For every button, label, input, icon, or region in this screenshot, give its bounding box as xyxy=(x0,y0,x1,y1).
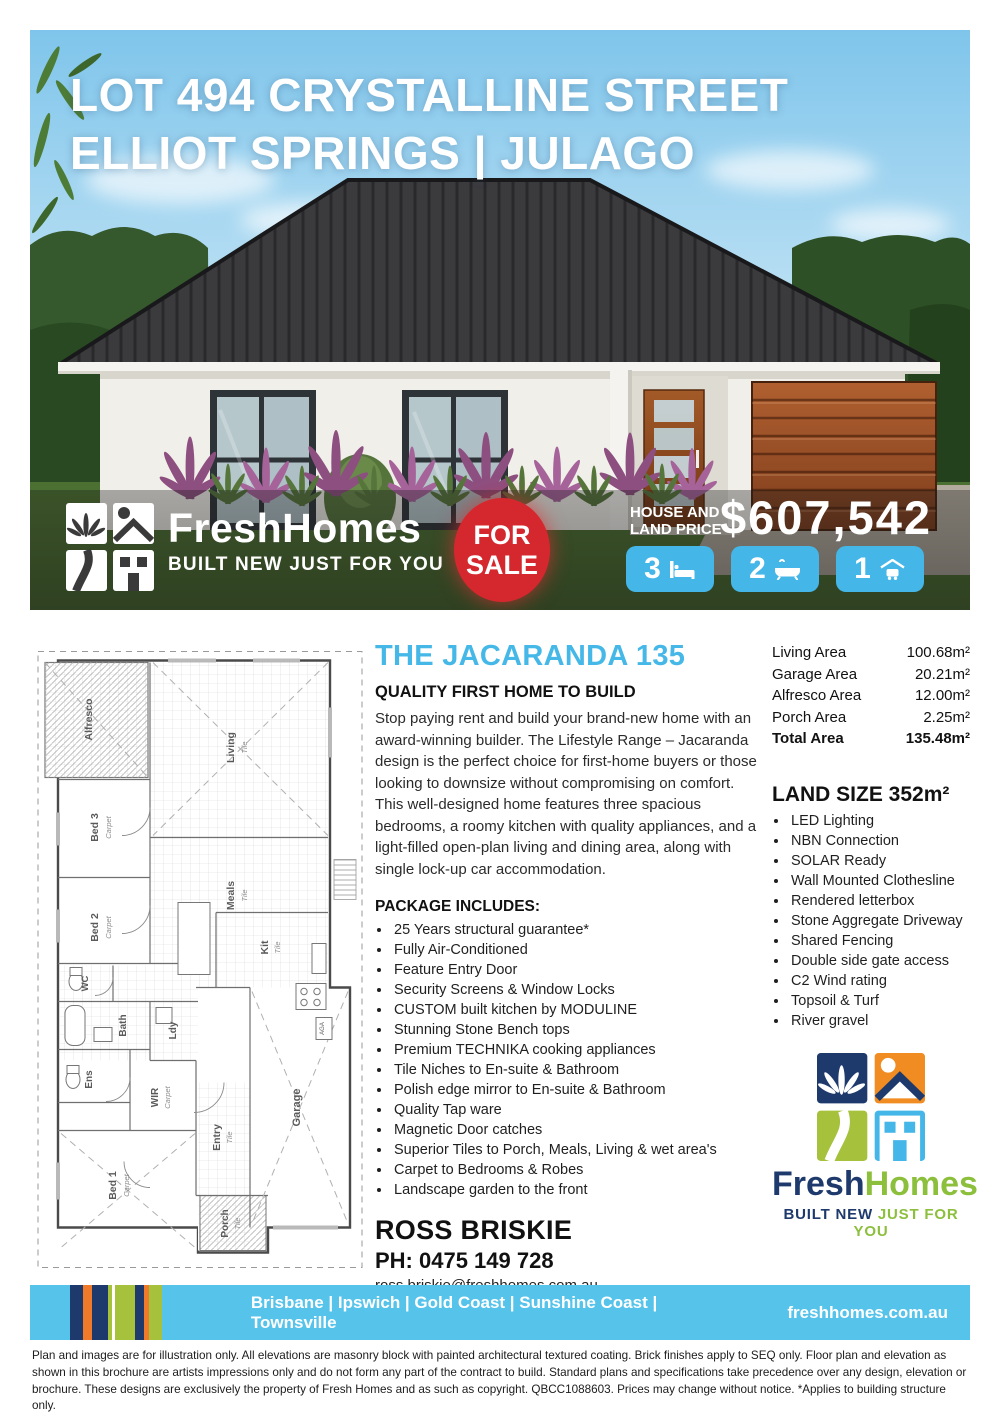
feature-item: C2 Wind rating xyxy=(789,971,970,991)
hero-info-strip: FreshHomes BUILT NEW JUST FOR YOU FOR SA… xyxy=(30,490,970,610)
package-item: Feature Entry Door xyxy=(392,960,760,980)
brand-name-color: FreshHomes xyxy=(772,1166,970,1202)
footer-stripe xyxy=(70,1285,83,1340)
features-list: LED LightingNBN ConnectionSOLAR ReadyWal… xyxy=(789,811,970,1031)
brand-lockup-white: FreshHomes BUILT NEW JUST FOR YOU xyxy=(168,506,444,576)
freshhomes-logo-mark xyxy=(817,1053,925,1161)
description-column: THE JACARANDA 135 QUALITY FIRST HOME TO … xyxy=(375,640,760,1294)
feature-item: NBN Connection xyxy=(789,831,970,851)
package-item: Carpet to Bedrooms & Robes xyxy=(392,1160,760,1180)
property-stats: 3 2 xyxy=(626,546,924,592)
svg-text:Carpet: Carpet xyxy=(163,1085,172,1108)
area-row: Porch Area 2.25m² xyxy=(772,707,970,729)
svg-text:Porch: Porch xyxy=(220,1209,231,1237)
brand-homes-green: Homes xyxy=(865,1165,978,1203)
fine-print: Plan and images are for illustration onl… xyxy=(32,1348,970,1415)
svg-text:Living: Living xyxy=(225,732,237,763)
svg-text:Garage: Garage xyxy=(291,1089,303,1127)
area-table: Living Area 100.68m² Garage Area 20.21m²… xyxy=(772,642,970,728)
total-area-label: Total Area xyxy=(772,728,844,750)
svg-text:WC: WC xyxy=(80,975,91,991)
package-item: Stunning Stone Bench tops xyxy=(392,1020,760,1040)
svg-text:Meals: Meals xyxy=(225,881,237,910)
area-value: 2.25m² xyxy=(923,707,970,729)
contact-block: ROSS BRISKIE PH: 0475 149 728 ross.brisk… xyxy=(375,1215,760,1294)
tagline-navy: BUILT NEW xyxy=(784,1206,878,1223)
bed-icon xyxy=(669,559,696,580)
price-label-line2: LAND PRICE xyxy=(630,521,722,538)
area-label: Living Area xyxy=(772,642,846,664)
description-paragraph: Stop paying rent and build your brand-ne… xyxy=(375,708,760,880)
brand-tagline-color: BUILT NEW JUST FOR YOU xyxy=(772,1206,970,1240)
svg-text:Bed 2: Bed 2 xyxy=(89,913,101,942)
for-sale-line1: FOR xyxy=(474,520,531,550)
area-value: 12.00m² xyxy=(915,685,970,707)
svg-text:Alfresco: Alfresco xyxy=(83,698,95,740)
svg-text:Carpet: Carpet xyxy=(122,1173,131,1196)
area-value: 100.68m² xyxy=(907,642,970,664)
area-row-total: Total Area 135.48m² xyxy=(772,728,970,750)
svg-text:Carpet: Carpet xyxy=(104,815,113,838)
package-item: Quality Tap ware xyxy=(392,1100,760,1120)
svg-text:Ens: Ens xyxy=(84,1070,95,1089)
agent-name: ROSS BRISKIE xyxy=(375,1215,760,1246)
footer-stripe xyxy=(149,1285,162,1340)
feature-item: Topsoil & Turf xyxy=(789,991,970,1011)
svg-text:Tile: Tile xyxy=(240,889,249,901)
freshhomes-logo-white xyxy=(66,503,154,591)
bedrooms-badge: 3 xyxy=(626,546,714,592)
brand-homes: Homes xyxy=(282,505,421,551)
area-row: Garage Area 20.21m² xyxy=(772,664,970,686)
brand-fresh-navy: Fresh xyxy=(772,1165,865,1203)
svg-text:Bath: Bath xyxy=(118,1014,129,1036)
feature-item: River gravel xyxy=(789,1011,970,1031)
brand-name: FreshHomes xyxy=(168,506,444,550)
footer-stripe xyxy=(92,1285,108,1340)
feature-item: LED Lighting xyxy=(789,811,970,831)
package-item: Magnetic Door catches xyxy=(392,1120,760,1140)
price-value: $607,542 xyxy=(720,490,932,545)
brand-tagline: BUILT NEW JUST FOR YOU xyxy=(168,554,444,576)
svg-text:Tile: Tile xyxy=(273,941,282,953)
package-item: Tile Niches to En-suite & Bathroom xyxy=(392,1060,760,1080)
price-label: HOUSE AND LAND PRICE xyxy=(630,504,722,538)
feature-item: Stone Aggregate Driveway xyxy=(789,911,970,931)
agent-phone: PH: 0475 149 728 xyxy=(375,1248,760,1274)
garage-badge: 1 xyxy=(836,546,924,592)
package-item: Security Screens & Window Locks xyxy=(392,980,760,1000)
svg-text:Tile: Tile xyxy=(233,1217,242,1229)
package-item: CUSTOM built kitchen by MODULINE xyxy=(392,1000,760,1020)
bathrooms-count: 2 xyxy=(749,552,766,586)
listing-title-line1: LOT 494 CRYSTALLINE STREET xyxy=(70,66,788,124)
feature-item: Wall Mounted Clothesline xyxy=(789,871,970,891)
svg-text:Tile: Tile xyxy=(225,1131,234,1143)
svg-text:AGA: AGA xyxy=(320,1022,326,1035)
package-item: Fully Air-Conditioned xyxy=(392,940,760,960)
listing-title-line2: ELLIOT SPRINGS | JULAGO xyxy=(70,124,788,182)
floorplan-drawing: Alfresco Living Tile Bed 3 Carpet Meals … xyxy=(28,645,368,1275)
footer-stripes xyxy=(70,1285,162,1340)
listing-title: LOT 494 CRYSTALLINE STREET ELLIOT SPRING… xyxy=(70,66,788,182)
package-item: Polish edge mirror to En-suite & Bathroo… xyxy=(392,1080,760,1100)
details-column: Living Area 100.68m² Garage Area 20.21m²… xyxy=(772,642,970,1240)
car-icon xyxy=(879,559,906,580)
hero-photo: LOT 494 CRYSTALLINE STREET ELLIOT SPRING… xyxy=(30,30,970,610)
floorplan: Alfresco Living Tile Bed 3 Carpet Meals … xyxy=(28,645,368,1275)
footer-website[interactable]: freshhomes.com.au xyxy=(787,1285,948,1340)
design-name-heading: THE JACARANDA 135 xyxy=(375,640,760,673)
for-sale-badge: FOR SALE xyxy=(454,498,550,602)
package-heading: PACKAGE INCLUDES: xyxy=(375,898,760,916)
footer-stripe xyxy=(135,1285,144,1340)
footer-stripe xyxy=(115,1285,135,1340)
package-list: 25 Years structural guarantee*Fully Air-… xyxy=(392,920,760,1200)
bedrooms-count: 3 xyxy=(644,552,661,586)
land-size-heading: LAND SIZE 352m² xyxy=(772,783,970,807)
feature-item: Rendered letterbox xyxy=(789,891,970,911)
area-value: 20.21m² xyxy=(915,664,970,686)
brand-fresh: Fresh xyxy=(168,505,282,551)
svg-text:Carpet: Carpet xyxy=(104,915,113,938)
garage-count: 1 xyxy=(854,552,871,586)
footer-bar: Brisbane | Ipswich | Gold Coast | Sunshi… xyxy=(30,1285,970,1340)
package-item: Landscape garden to the front xyxy=(392,1180,760,1200)
area-row: Alfresco Area 12.00m² xyxy=(772,685,970,707)
svg-text:WIR: WIR xyxy=(150,1087,161,1107)
svg-text:Ldy: Ldy xyxy=(168,1021,179,1039)
area-row: Living Area 100.68m² xyxy=(772,642,970,664)
svg-text:Bed 3: Bed 3 xyxy=(89,813,101,842)
package-item: 25 Years structural guarantee* xyxy=(392,920,760,940)
feature-item: SOLAR Ready xyxy=(789,851,970,871)
package-item: Premium TECHNIKA cooking appliances xyxy=(392,1040,760,1060)
footer-locations: Brisbane | Ipswich | Gold Coast | Sunshi… xyxy=(251,1285,721,1340)
bath-icon xyxy=(774,559,801,580)
svg-text:Tile: Tile xyxy=(240,741,249,753)
freshhomes-logo-color: FreshHomes BUILT NEW JUST FOR YOU xyxy=(772,1053,970,1240)
brochure-page: LOT 494 CRYSTALLINE STREET ELLIOT SPRING… xyxy=(0,0,1000,1414)
svg-text:Bed 1: Bed 1 xyxy=(107,1171,119,1200)
bathrooms-badge: 2 xyxy=(731,546,819,592)
feature-item: Double side gate access xyxy=(789,951,970,971)
svg-text:Kit: Kit xyxy=(259,940,271,955)
for-sale-line2: SALE xyxy=(466,550,538,580)
area-label: Alfresco Area xyxy=(772,685,861,707)
price-label-line1: HOUSE AND xyxy=(630,504,722,521)
svg-text:Entry: Entry xyxy=(211,1124,223,1151)
package-item: Superior Tiles to Porch, Meals, Living &… xyxy=(392,1140,760,1160)
area-label: Porch Area xyxy=(772,707,846,729)
area-label: Garage Area xyxy=(772,664,857,686)
feature-item: Shared Fencing xyxy=(789,931,970,951)
footer-stripe xyxy=(83,1285,92,1340)
total-area-value: 135.48m² xyxy=(906,728,970,750)
clothesline xyxy=(334,860,356,900)
subheading: QUALITY FIRST HOME TO BUILD xyxy=(375,683,760,702)
